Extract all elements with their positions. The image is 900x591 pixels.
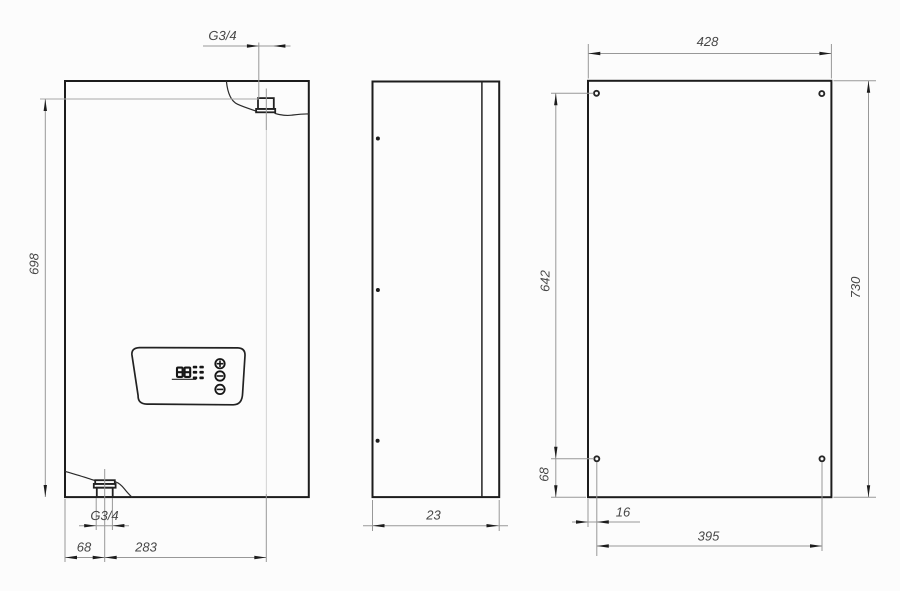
svg-text:395: 395 xyxy=(698,528,720,543)
svg-text:642: 642 xyxy=(538,269,553,291)
svg-text:428: 428 xyxy=(697,34,719,49)
svg-text:G3/4: G3/4 xyxy=(208,28,236,43)
svg-text:283: 283 xyxy=(134,539,157,554)
svg-text:16: 16 xyxy=(616,504,631,519)
svg-text:730: 730 xyxy=(848,276,863,298)
svg-text:68: 68 xyxy=(77,539,92,554)
svg-text:68: 68 xyxy=(537,467,552,482)
svg-text:G3/4: G3/4 xyxy=(90,508,118,523)
svg-text:698: 698 xyxy=(27,252,42,274)
svg-text:23: 23 xyxy=(425,507,441,522)
